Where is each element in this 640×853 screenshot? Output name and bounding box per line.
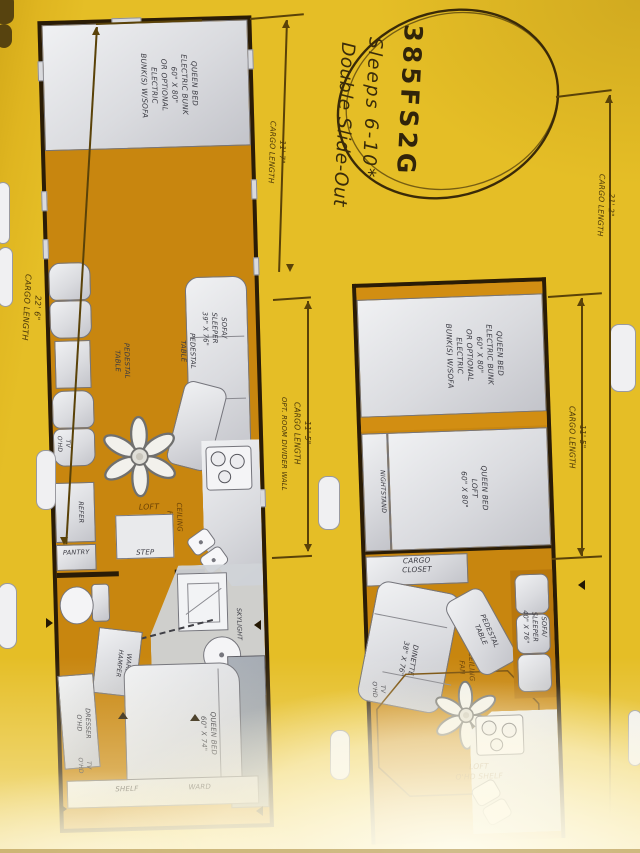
toilet-tank xyxy=(91,584,110,622)
dim-right-rear: 11' 5" CARGO LENGTH xyxy=(561,384,587,490)
entry-door xyxy=(36,450,56,510)
toilet-bowl xyxy=(59,586,94,625)
pantry-label: PANTRY xyxy=(56,548,96,558)
page-edge-pill xyxy=(0,583,17,649)
divider-note: OPT. ROOM DIVIDER WALL xyxy=(272,365,288,523)
dimension-arrow xyxy=(304,544,312,552)
step-label: STEP xyxy=(116,548,174,559)
page-edge-pill xyxy=(0,182,10,244)
window xyxy=(253,257,260,275)
dim-left-rear: 11' 7" CARGO LENGTH xyxy=(257,92,289,213)
dimension-arrow xyxy=(282,20,290,28)
sofa-sleeper-label: SOFA/ SLEEPER 39" X 76" xyxy=(195,282,230,375)
page-edge-pill xyxy=(0,247,13,307)
marker-triangle xyxy=(254,620,261,630)
chair xyxy=(48,262,91,301)
cargo-closet-label: CARGO CLOSET xyxy=(372,554,463,575)
photo-bottom-edge xyxy=(0,849,640,853)
window xyxy=(41,191,48,211)
sofa-sleeper-label: SOFA/ SLEEPER 40" X 76" xyxy=(515,583,550,670)
marker-triangle xyxy=(190,714,200,721)
brochure-photo: 385FS2G Sleeps 6-10* Double Slide-Out QU… xyxy=(0,0,640,853)
marker-triangle xyxy=(118,712,128,719)
page-edge-blob xyxy=(0,24,12,48)
front-wardrobe xyxy=(67,775,260,808)
marker-triangle xyxy=(60,804,67,814)
dim-left-total: 22' 6" CARGO LENGTH xyxy=(10,239,47,374)
wall xyxy=(57,571,119,578)
dimension-tick xyxy=(250,13,304,20)
skylight-inner xyxy=(187,582,220,623)
queen-bed-label: QUEEN BED 60" X 74" xyxy=(182,685,219,784)
dimension-arrow xyxy=(60,537,68,545)
dim-left-mid: 11' 5" CARGO LENGTH xyxy=(288,378,312,488)
bunk-bed-label: QUEEN BED ELECTRIC BUNK 60" X 80" OR OPT… xyxy=(92,23,201,148)
entry-door xyxy=(628,710,640,766)
entry-door xyxy=(318,476,340,530)
marker-triangle xyxy=(46,618,53,628)
dimension-tick xyxy=(552,555,602,560)
queen-bed-loft-label: QUEEN BED LOFT 60" X 80" xyxy=(427,437,491,541)
loft-shelf-label: LOFT O'HD SHELF xyxy=(431,760,528,784)
marker-triangle xyxy=(578,580,585,590)
dimension-arrow xyxy=(577,298,585,306)
shelf-label: SHELF xyxy=(99,784,155,795)
nightstand-label: NIGHTSTAND xyxy=(362,439,388,546)
pedestal-table-label: PEDESTAL TABLE xyxy=(170,313,198,390)
dimension-arrow xyxy=(92,27,100,35)
pedestal-table xyxy=(54,340,91,389)
dimension-arrow xyxy=(304,301,312,309)
chair xyxy=(49,300,92,339)
dimension-arrow xyxy=(286,264,294,272)
dimension-tick xyxy=(548,292,602,298)
window xyxy=(37,61,44,81)
entry-door xyxy=(610,324,636,392)
dimension-arrow xyxy=(577,548,585,556)
pedestal-table-label: PEDESTAL TABLE xyxy=(104,323,132,400)
page-edge-blob xyxy=(0,0,14,24)
dim-right-total: 21' 2" CARGO LENGTH xyxy=(586,148,618,263)
dimension-arrow xyxy=(605,95,613,103)
bunk-bed-label: QUEEN BED ELECTRIC BUNK 60" X 80" OR OPT… xyxy=(396,291,506,421)
ward-label: WARD xyxy=(175,782,225,793)
dimension-tick xyxy=(272,555,312,559)
window xyxy=(247,49,254,69)
marker-triangle xyxy=(256,806,263,816)
entry-door xyxy=(330,730,350,780)
floor-plan-right: QUEEN BED ELECTRIC BUNK 60" X 80" OR OPT… xyxy=(352,277,565,844)
